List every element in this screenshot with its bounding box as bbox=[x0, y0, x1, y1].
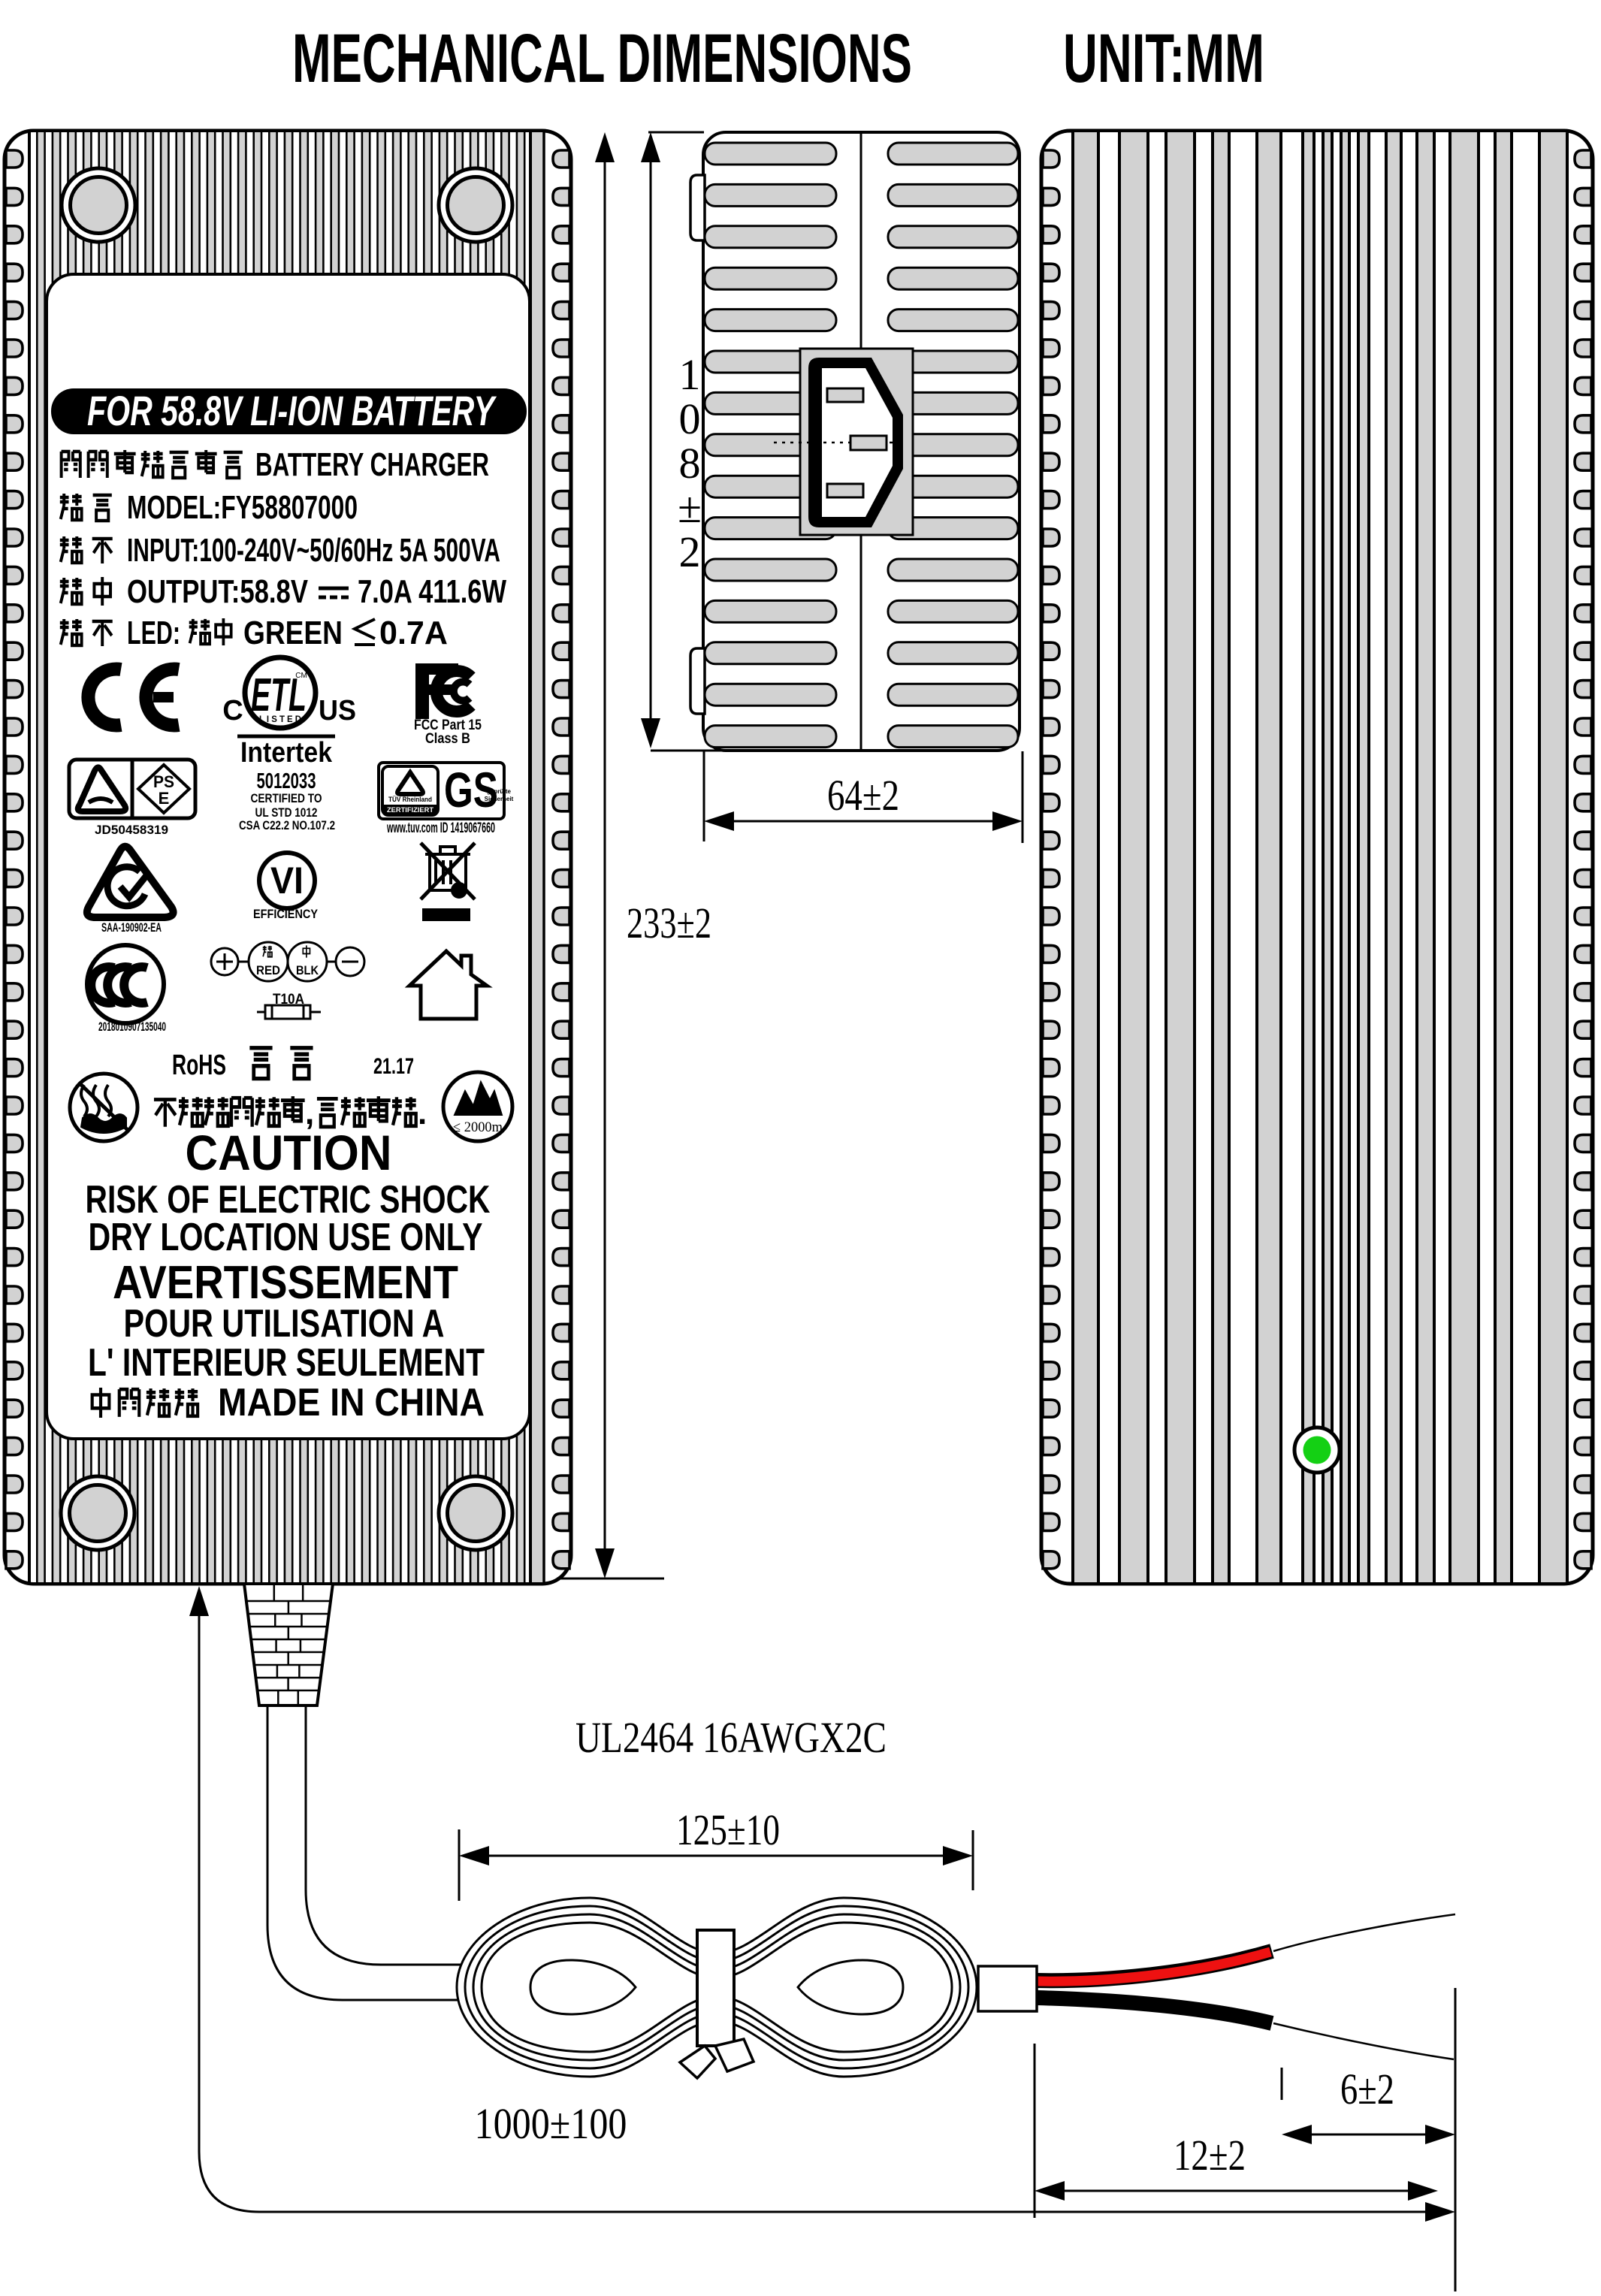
svg-text:8: 8 bbox=[679, 439, 701, 488]
svg-text:≤ 2000m: ≤ 2000m bbox=[453, 1119, 503, 1135]
svg-text:CM: CM bbox=[295, 672, 307, 680]
svg-text:L' INTERIEUR SEULEMENT: L' INTERIEUR SEULEMENT bbox=[88, 1341, 485, 1385]
svg-text:MODEL:FY58807000: MODEL:FY58807000 bbox=[127, 489, 358, 526]
svg-text:AVERTISSEMENT: AVERTISSEMENT bbox=[113, 1257, 458, 1309]
svg-text:0.7A: 0.7A bbox=[379, 615, 448, 651]
svg-text:TÜV Rheinland: TÜV Rheinland bbox=[388, 796, 432, 803]
svg-text:.: . bbox=[418, 1095, 427, 1131]
svg-text:ZERTIFIZIERT: ZERTIFIZIERT bbox=[387, 806, 434, 814]
svg-text:Intertek: Intertek bbox=[240, 737, 333, 769]
svg-text:CERTIFIED TO: CERTIFIED TO bbox=[251, 791, 322, 805]
svg-text:RoHS: RoHS bbox=[172, 1050, 226, 1081]
svg-text:POUR UTILISATION A: POUR UTILISATION A bbox=[124, 1302, 445, 1346]
svg-text:MADE IN CHINA: MADE IN CHINA bbox=[218, 1381, 485, 1424]
svg-text:Class B: Class B bbox=[425, 731, 470, 747]
svg-text:7.0A 411.6W: 7.0A 411.6W bbox=[358, 573, 506, 610]
svg-text:BATTERY CHARGER: BATTERY CHARGER bbox=[255, 446, 489, 483]
svg-text:Sicherheit: Sicherheit bbox=[485, 796, 514, 802]
svg-text:6±2: 6±2 bbox=[1340, 2065, 1394, 2113]
svg-text:EFFICIENCY: EFFICIENCY bbox=[253, 907, 319, 921]
svg-text:UL2464 16AWGX2C: UL2464 16AWGX2C bbox=[575, 1713, 887, 1762]
svg-text:5012033: 5012033 bbox=[257, 769, 316, 793]
svg-text:L I S T E D: L I S T E D bbox=[259, 714, 301, 724]
svg-text:1000±100: 1000±100 bbox=[475, 2099, 627, 2148]
svg-text:US: US bbox=[319, 695, 356, 727]
svg-text:C: C bbox=[222, 695, 243, 727]
svg-text:VI: VI bbox=[270, 859, 304, 902]
svg-text:2018010907135040: 2018010907135040 bbox=[98, 1020, 166, 1034]
svg-text:CAUTION: CAUTION bbox=[186, 1125, 392, 1180]
svg-text:RED: RED bbox=[256, 963, 280, 977]
svg-text:125±10: 125±10 bbox=[676, 1805, 780, 1854]
svg-text:0: 0 bbox=[679, 394, 701, 443]
svg-text:1: 1 bbox=[679, 350, 701, 399]
svg-text:E: E bbox=[159, 789, 170, 808]
svg-text:GREEN: GREEN bbox=[243, 615, 343, 651]
svg-text:FOR 58.8V LI-ION BATTERY: FOR 58.8V LI-ION BATTERY bbox=[87, 387, 497, 434]
svg-text:geprüfte: geprüfte bbox=[487, 788, 512, 795]
svg-text:DRY LOCATION USE ONLY: DRY LOCATION USE ONLY bbox=[89, 1216, 483, 1259]
svg-text:SAA-190902-EA: SAA-190902-EA bbox=[101, 920, 162, 935]
svg-text:64±2: 64±2 bbox=[827, 771, 899, 820]
svg-text:UNIT:MM: UNIT:MM bbox=[1063, 20, 1264, 97]
svg-text:www.tuv.com ID 1419067660: www.tuv.com ID 1419067660 bbox=[386, 820, 495, 836]
svg-text:2: 2 bbox=[679, 527, 701, 576]
svg-text:OUTPUT:58.8V: OUTPUT:58.8V bbox=[127, 573, 309, 610]
svg-text:MECHANICAL DIMENSIONS: MECHANICAL DIMENSIONS bbox=[292, 20, 912, 97]
svg-text:21.17: 21.17 bbox=[373, 1054, 414, 1079]
svg-text:INPUT:100-240V~50/60Hz 5A 500V: INPUT:100-240V~50/60Hz 5A 500VA bbox=[127, 532, 500, 569]
svg-text:CSA C22.2 NO.107.2: CSA C22.2 NO.107.2 bbox=[239, 818, 335, 832]
svg-text:BLK: BLK bbox=[296, 963, 319, 977]
svg-text:12±2: 12±2 bbox=[1174, 2131, 1246, 2180]
svg-text:±: ± bbox=[678, 483, 702, 532]
svg-text:JD50458319: JD50458319 bbox=[95, 823, 168, 837]
svg-text:LED:: LED: bbox=[127, 615, 180, 651]
svg-text:233±2: 233±2 bbox=[627, 899, 711, 947]
